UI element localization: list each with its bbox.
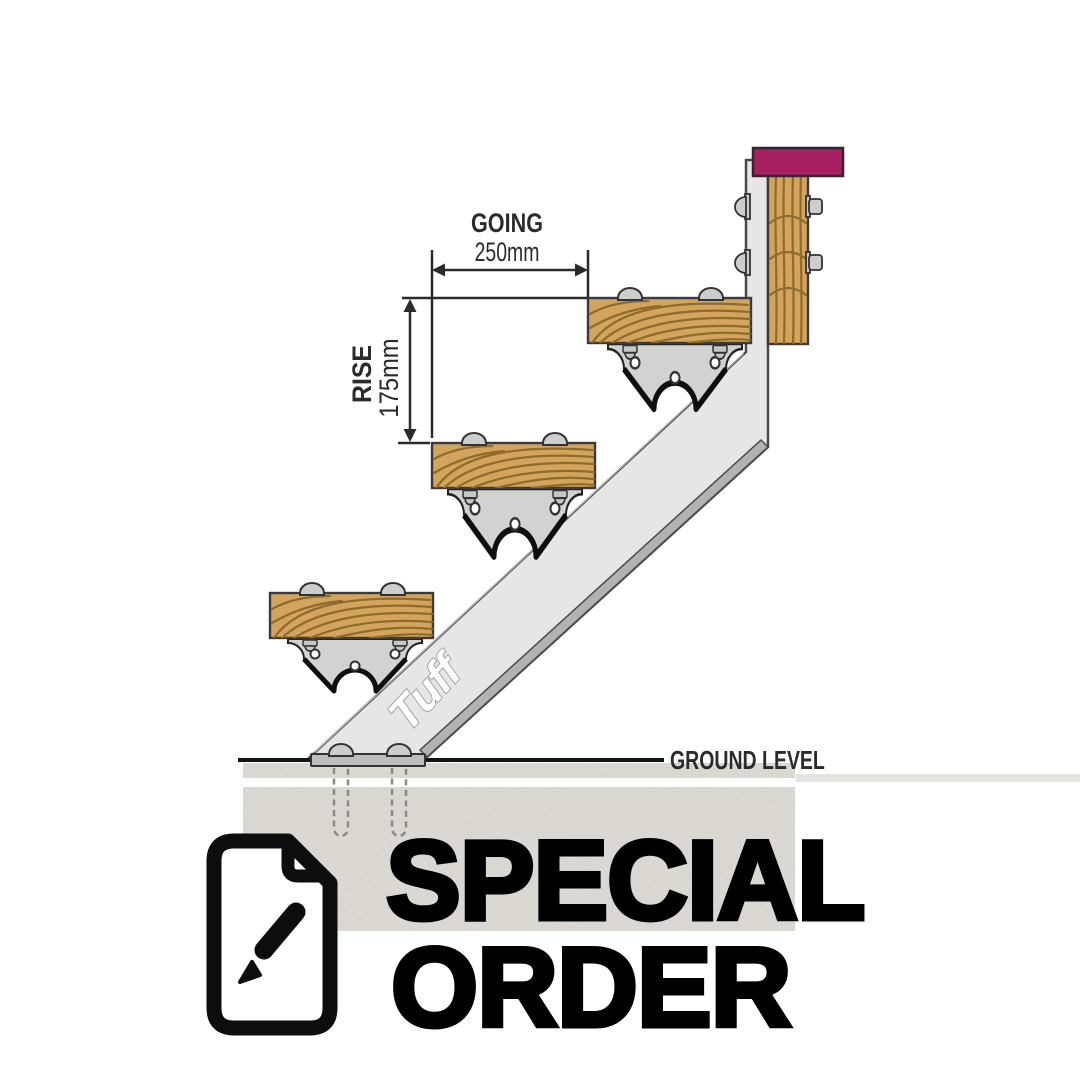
ground-level-label: GROUND LEVEL [670,745,825,774]
post-cap [753,148,843,176]
stair-stringer-product-image: GROUND LEVEL Tuff [0,0,1080,1080]
going-dimension-label: GOING [471,209,543,239]
plate-bolt [329,744,353,756]
ground-strip-right [796,774,1080,782]
slab-joint-strip [240,778,796,787]
going-dimension-value: 250mm [475,237,540,267]
rise-dimension-value: 175mm [375,338,405,417]
document-edit-icon [214,841,330,1028]
plate-bolt [387,744,411,756]
special-order-text-line2: ORDER [391,925,790,1050]
rise-dimension-label: RISE [348,345,377,403]
